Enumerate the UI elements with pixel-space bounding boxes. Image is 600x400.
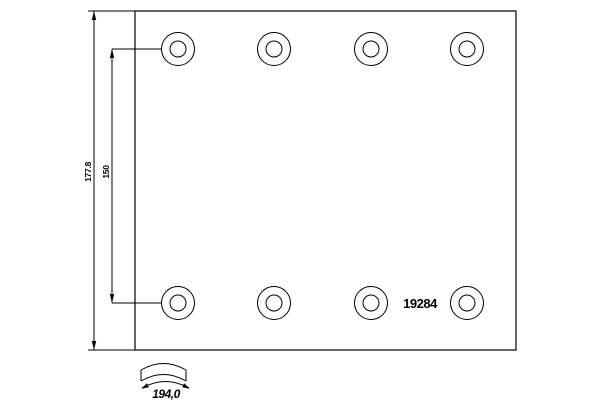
rivet-hole	[162, 33, 195, 66]
dimension-overall-height-label: 177.8	[83, 162, 93, 182]
part-number-label: 19284	[403, 296, 438, 311]
rivet-hole	[451, 33, 484, 66]
dimension-hole-spacing-label: 150	[101, 165, 111, 179]
section-inner-arc	[141, 375, 186, 382]
rivet-hole	[258, 287, 291, 320]
arrowhead-up-icon	[110, 49, 114, 58]
arrowhead-down-icon	[110, 294, 114, 303]
rivet-holes-top-row	[162, 33, 484, 66]
dimension-arc-width-label: 194,0	[152, 387, 180, 400]
dimension-hole-spacing: 150	[101, 49, 162, 303]
dimension-arc-width: 194,0	[142, 382, 190, 400]
section-outer-arc	[141, 364, 186, 371]
rivet-hole	[162, 287, 195, 320]
drawing-canvas: 177.8 150 19284 194,0	[0, 0, 600, 400]
rivet-hole	[258, 33, 291, 66]
arrowhead-left-icon	[142, 383, 149, 389]
rivet-hole	[355, 33, 388, 66]
rivet-hole	[355, 287, 388, 320]
arrowhead-right-icon	[182, 383, 189, 389]
arrowhead-up-icon	[92, 11, 96, 20]
arrowhead-down-icon	[92, 341, 96, 350]
curved-cross-section-symbol	[141, 364, 186, 382]
dimension-overall-height: 177.8	[83, 11, 135, 350]
lining-plate-outline	[135, 11, 516, 350]
rivet-hole	[451, 287, 484, 320]
brake-lining-technical-drawing: 177.8 150 19284 194,0	[0, 0, 600, 400]
